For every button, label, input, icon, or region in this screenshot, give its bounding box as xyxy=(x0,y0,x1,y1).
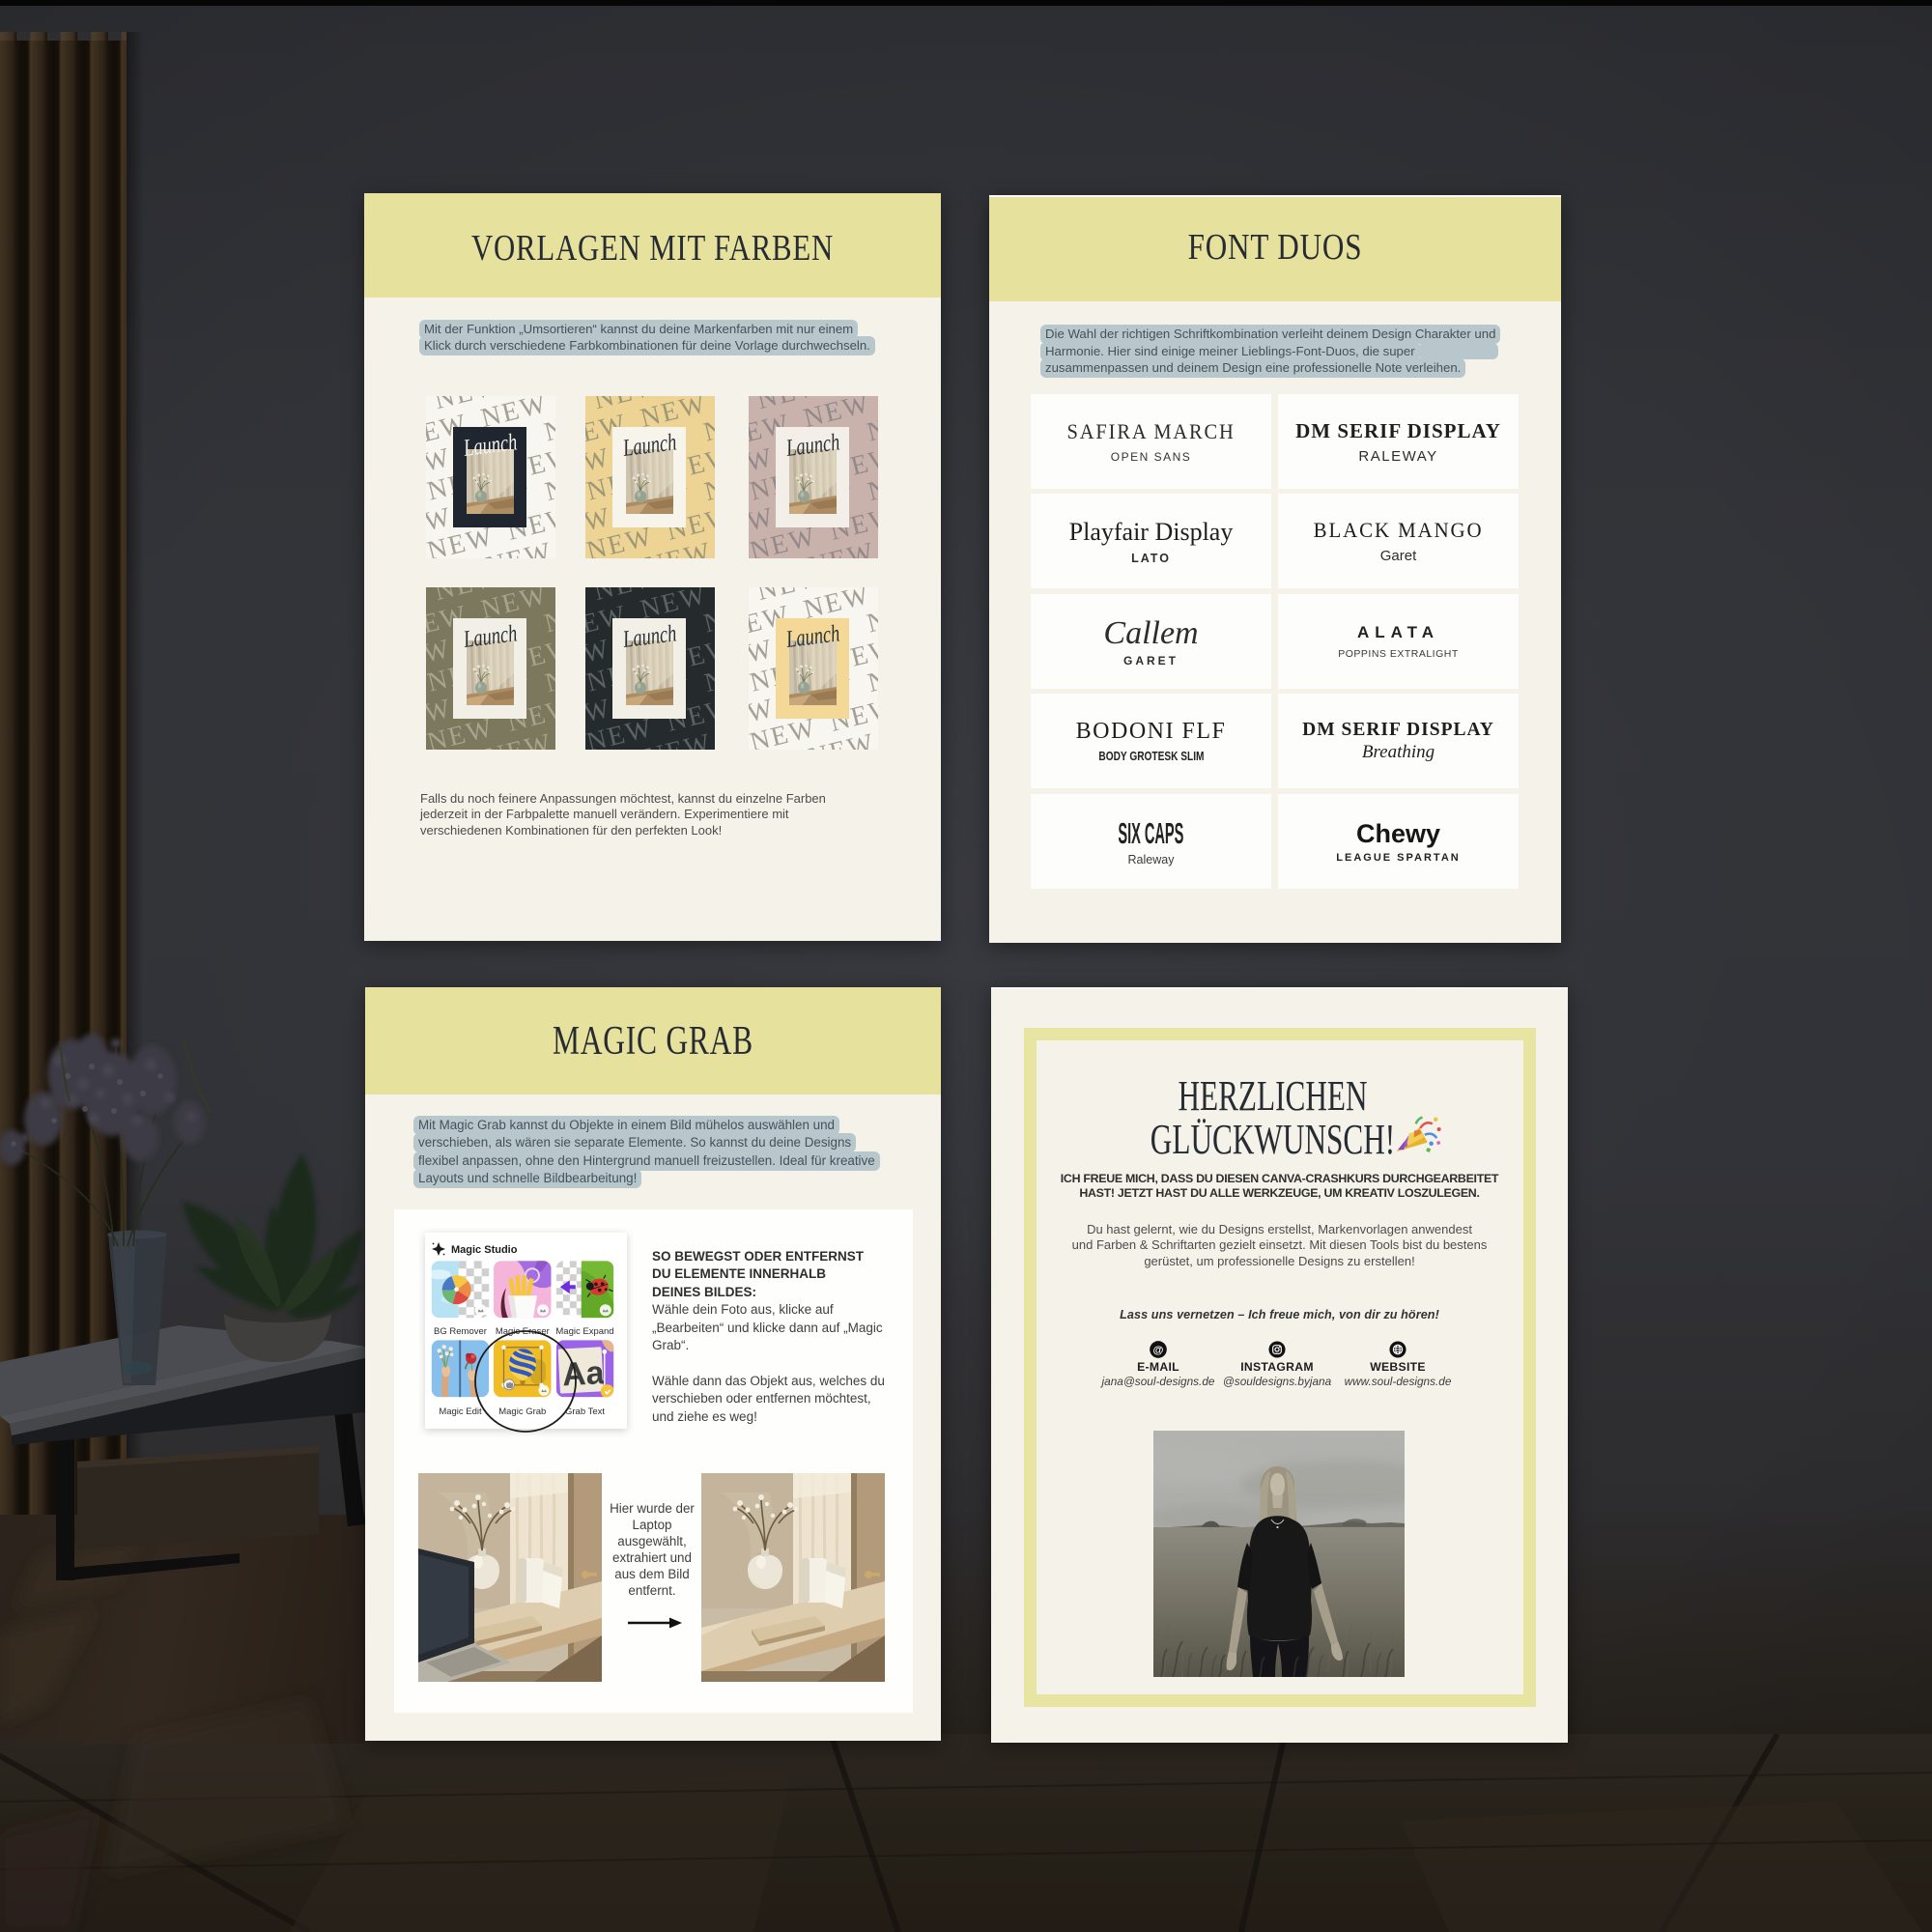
svg-text:@: @ xyxy=(1153,1345,1164,1356)
svg-text:Magic Studio: Magic Studio xyxy=(451,1244,518,1256)
